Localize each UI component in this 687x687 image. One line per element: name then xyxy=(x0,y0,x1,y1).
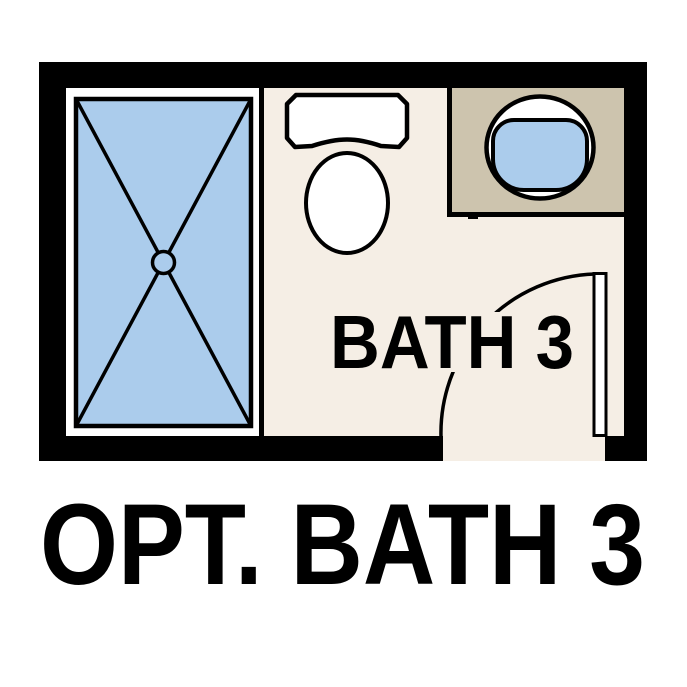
svg-text:BATH 3: BATH 3 xyxy=(330,300,574,384)
svg-text:OPT. BATH 3: OPT. BATH 3 xyxy=(40,481,645,609)
